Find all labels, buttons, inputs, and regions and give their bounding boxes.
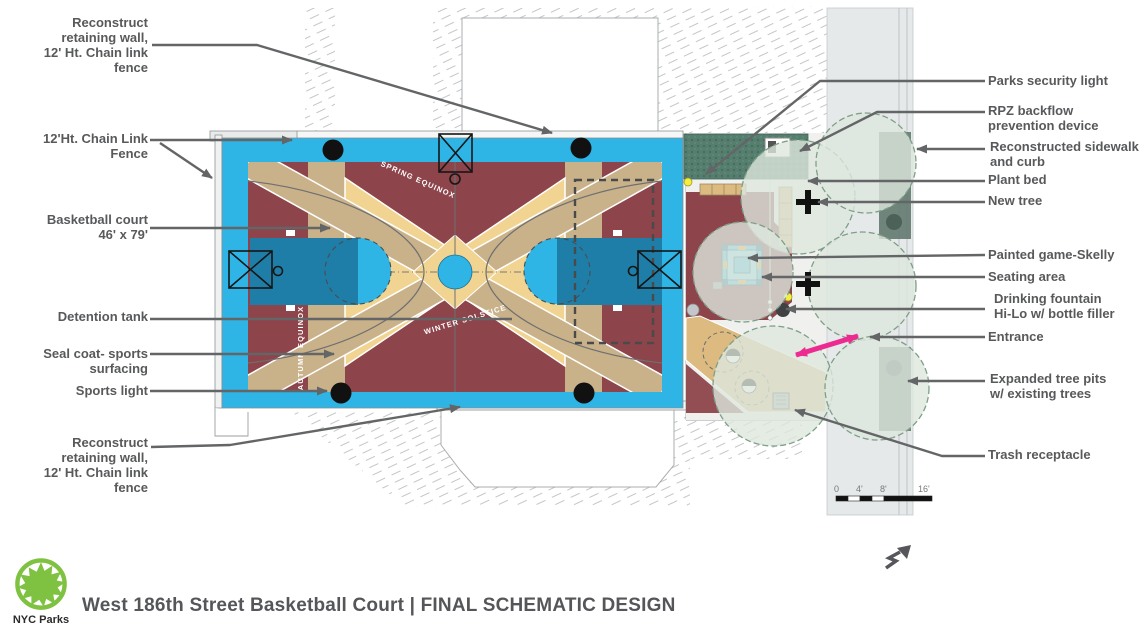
site-plan: SPRING EQUINOX WINTER SOLSTICE AUTUMN EQ… <box>0 0 1140 633</box>
callout-new-tree: New tree <box>988 193 1140 208</box>
nyc-parks-logo: NYC Parks <box>8 556 74 626</box>
existing-light-base <box>687 304 699 316</box>
callout-sports-light: Sports light <box>0 383 148 398</box>
key-right <box>524 238 662 305</box>
scale-tick-4: 4' <box>856 484 863 494</box>
scale-tick-8: 8' <box>880 484 887 494</box>
callout-expanded-tree-pits: Expanded tree pits w/ existing trees <box>990 371 1140 401</box>
callout-reconstruct-wall-bottom: Reconstruct retaining wall, 12' Ht. Chai… <box>0 435 148 495</box>
callout-chain-link-fence: 12'Ht. Chain Link Fence <box>0 131 148 161</box>
callout-plant-bed: Plant bed <box>988 172 1140 187</box>
building-footprint-bottom <box>441 410 674 487</box>
center-circle <box>438 255 472 289</box>
key-left <box>250 238 391 305</box>
callout-drinking-fountain: Drinking fountain Hi-Lo w/ bottle filler <box>994 291 1140 321</box>
callout-basketball-court: Basketball court 46' x 79' <box>0 212 148 242</box>
drawing-title: West 186th Street Basketball Court | FIN… <box>82 595 676 617</box>
callout-entrance: Entrance <box>988 329 1140 344</box>
basketball-court: SPRING EQUINOX WINTER SOLSTICE AUTUMN EQ… <box>222 134 683 408</box>
callout-painted-game-skelly: Painted game-Skelly <box>988 247 1140 262</box>
scale-tick-16: 16' <box>918 484 930 494</box>
callout-trash-receptacle: Trash receptacle <box>988 447 1140 462</box>
callout-detention-tank: Detention tank <box>0 309 148 324</box>
callout-seal-coat: Seal coat- sports surfacing <box>0 346 148 376</box>
north-arrow-icon <box>886 545 911 568</box>
scale-tick-0: 0 <box>834 484 839 494</box>
logo-text: NYC Parks <box>8 614 74 626</box>
callout-rpz-backflow: RPZ backflow prevention device <box>988 103 1140 133</box>
schematic-canvas: SPRING EQUINOX WINTER SOLSTICE AUTUMN EQ… <box>0 0 1140 633</box>
callout-parks-security-light: Parks security light <box>988 73 1140 88</box>
callout-reconstruct-wall-top: Reconstruct retaining wall, 12' Ht. Chai… <box>0 15 148 75</box>
callout-seating-area: Seating area <box>988 269 1140 284</box>
nyc-parks-leaf-icon <box>13 556 69 612</box>
callout-reconstructed-sidewalk: Reconstructed sidewalk and curb <box>990 139 1140 169</box>
